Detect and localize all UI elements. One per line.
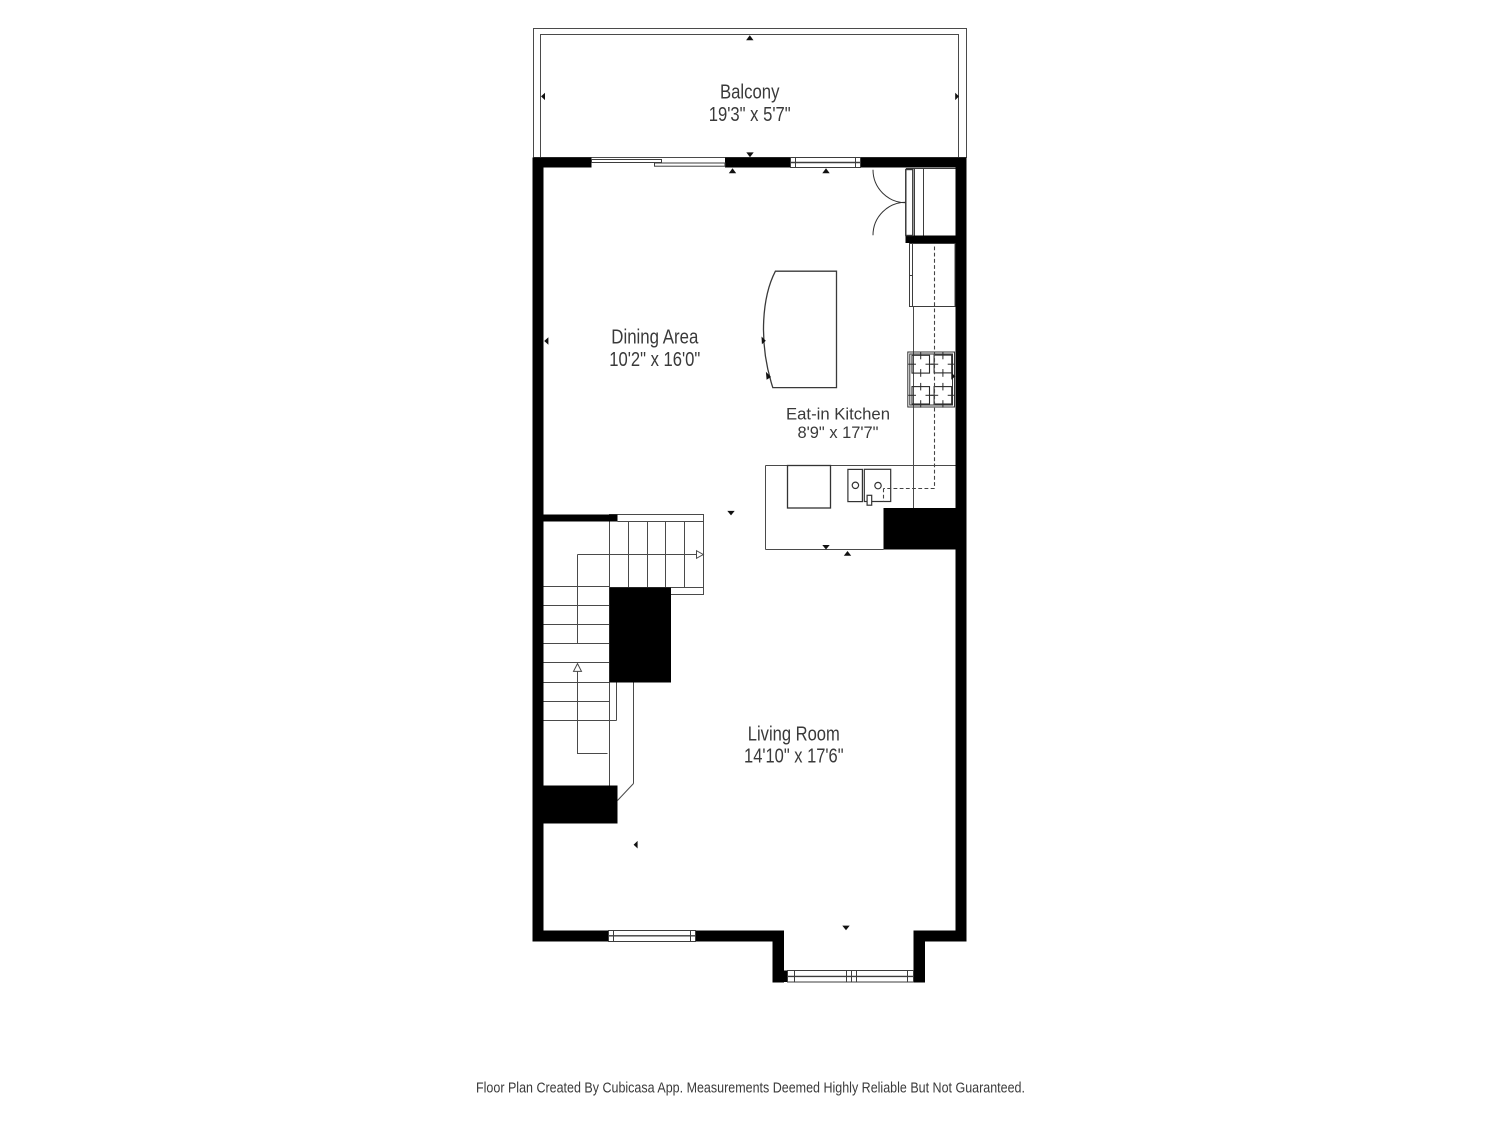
svg-text:Floor Plan Created By Cubicasa: Floor Plan Created By Cubicasa App. Meas…	[476, 1079, 1025, 1096]
svg-text:8'9" x 17'7": 8'9" x 17'7"	[798, 423, 879, 442]
svg-text:10'2" x 16'0": 10'2" x 16'0"	[609, 348, 700, 371]
svg-text:14'10" x 17'6": 14'10" x 17'6"	[744, 745, 844, 768]
svg-text:Balcony: Balcony	[720, 80, 780, 103]
svg-text:19'3" x 5'7": 19'3" x 5'7"	[709, 103, 791, 126]
svg-text:Living Room: Living Room	[748, 723, 840, 746]
svg-text:Dining Area: Dining Area	[611, 326, 698, 349]
svg-text:Eat-in Kitchen: Eat-in Kitchen	[786, 405, 890, 424]
